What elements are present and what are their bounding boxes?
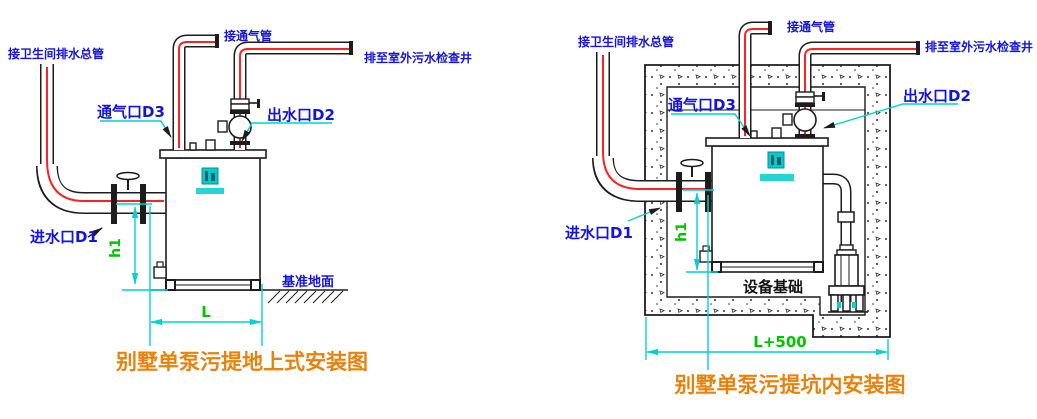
dim-L-text: L (201, 303, 211, 321)
label-datum-ground: 基准地面 (281, 274, 334, 290)
pipe-end-cap (768, 21, 772, 35)
pump-volute (829, 286, 864, 295)
gate-valve-icon (231, 99, 260, 110)
lid-fitting-icon (751, 131, 757, 138)
installation-drawing: h1 L 接卫生间排水总管 接通气管 排至室外污水检查井 通气口D3 出水口D2… (0, 0, 1037, 419)
valve-handle-icon (117, 173, 139, 180)
dim-h1-text: h1 (108, 238, 124, 258)
label-vent-connect: 接通气管 (787, 19, 835, 34)
label-vent-port: 通气口D3 (97, 103, 171, 137)
drawing-svg: h1 L 接卫生间排水总管 接通气管 排至室外污水检查井 通气口D3 出水口D2… (0, 0, 1037, 419)
sewage-tank (700, 128, 828, 272)
tank-drain-fitting (154, 262, 166, 278)
label-inlet-port: 进水口D1 (30, 228, 102, 246)
label-discharge-well: 排至室外污水检查井 (364, 50, 472, 65)
lid-fitting-icon (772, 128, 781, 138)
label-outlet-port: 出水口D2 (824, 87, 971, 128)
left-diagram: h1 L 接卫生间排水总管 接通气管 排至室外污水检查井 通气口D3 出水口D2… (8, 28, 472, 374)
base-rail (166, 280, 260, 290)
right-diagram: h1 L+500 接卫生间排水总管 接通气管 排至室外污水检查井 通气口D3 出… (565, 19, 1033, 397)
left-title: 别墅单泵污提地上式安装图 (115, 350, 368, 374)
label-vent-connect: 接通气管 (224, 28, 272, 43)
dim-h1-text: h1 (674, 222, 690, 242)
gate-valve-icon (796, 92, 825, 103)
sewage-tank (154, 140, 266, 290)
label-outlet-port: 出水口D2 (242, 106, 335, 141)
tank-lid (160, 150, 266, 158)
lid-fitting-icon (190, 143, 196, 150)
label-foundation: 设备基础 (743, 278, 803, 296)
dim-L500-text: L+500 (753, 333, 806, 351)
label-drain-main: 接卫生间排水总管 (578, 34, 674, 49)
tank-drain-fitting (700, 246, 712, 262)
svg-text:进水口D1: 进水口D1 (565, 224, 633, 242)
svg-text:进水口D1: 进水口D1 (30, 228, 98, 246)
right-title: 别墅单泵污提坑内安装图 (674, 373, 906, 397)
outlet-pipe (783, 41, 920, 138)
inlet-pipe-red-core (47, 67, 164, 201)
label-discharge-well: 排至室外污水检查井 (925, 39, 1033, 54)
svg-text:出水口D2: 出水口D2 (267, 106, 335, 124)
pump-motor (835, 255, 858, 286)
svg-text:通气口D3: 通气口D3 (97, 103, 165, 121)
svg-text:通气口D3: 通气口D3 (668, 96, 736, 114)
vent-pipe (179, 34, 219, 150)
ground-hatch (268, 291, 343, 303)
label-vent-port: 通气口D3 (668, 96, 750, 136)
pipe-end-cap (215, 34, 219, 48)
outlet-pipe (218, 41, 353, 150)
inlet-drain-pipe (47, 64, 166, 203)
flange (676, 172, 682, 212)
pipe-end-cap (916, 41, 920, 55)
ground-line (150, 290, 348, 303)
valve-handle-icon (681, 160, 703, 167)
label-drain-main: 接卫生间排水总管 (8, 46, 104, 61)
svg-text:出水口D2: 出水口D2 (903, 87, 971, 105)
pipe-coupling (838, 212, 854, 222)
lid-fitting-icon (206, 140, 215, 150)
base-rail (712, 262, 823, 272)
tank-lid (706, 138, 828, 146)
submersible-pump (828, 245, 868, 312)
pipe-end-cap (349, 41, 353, 55)
